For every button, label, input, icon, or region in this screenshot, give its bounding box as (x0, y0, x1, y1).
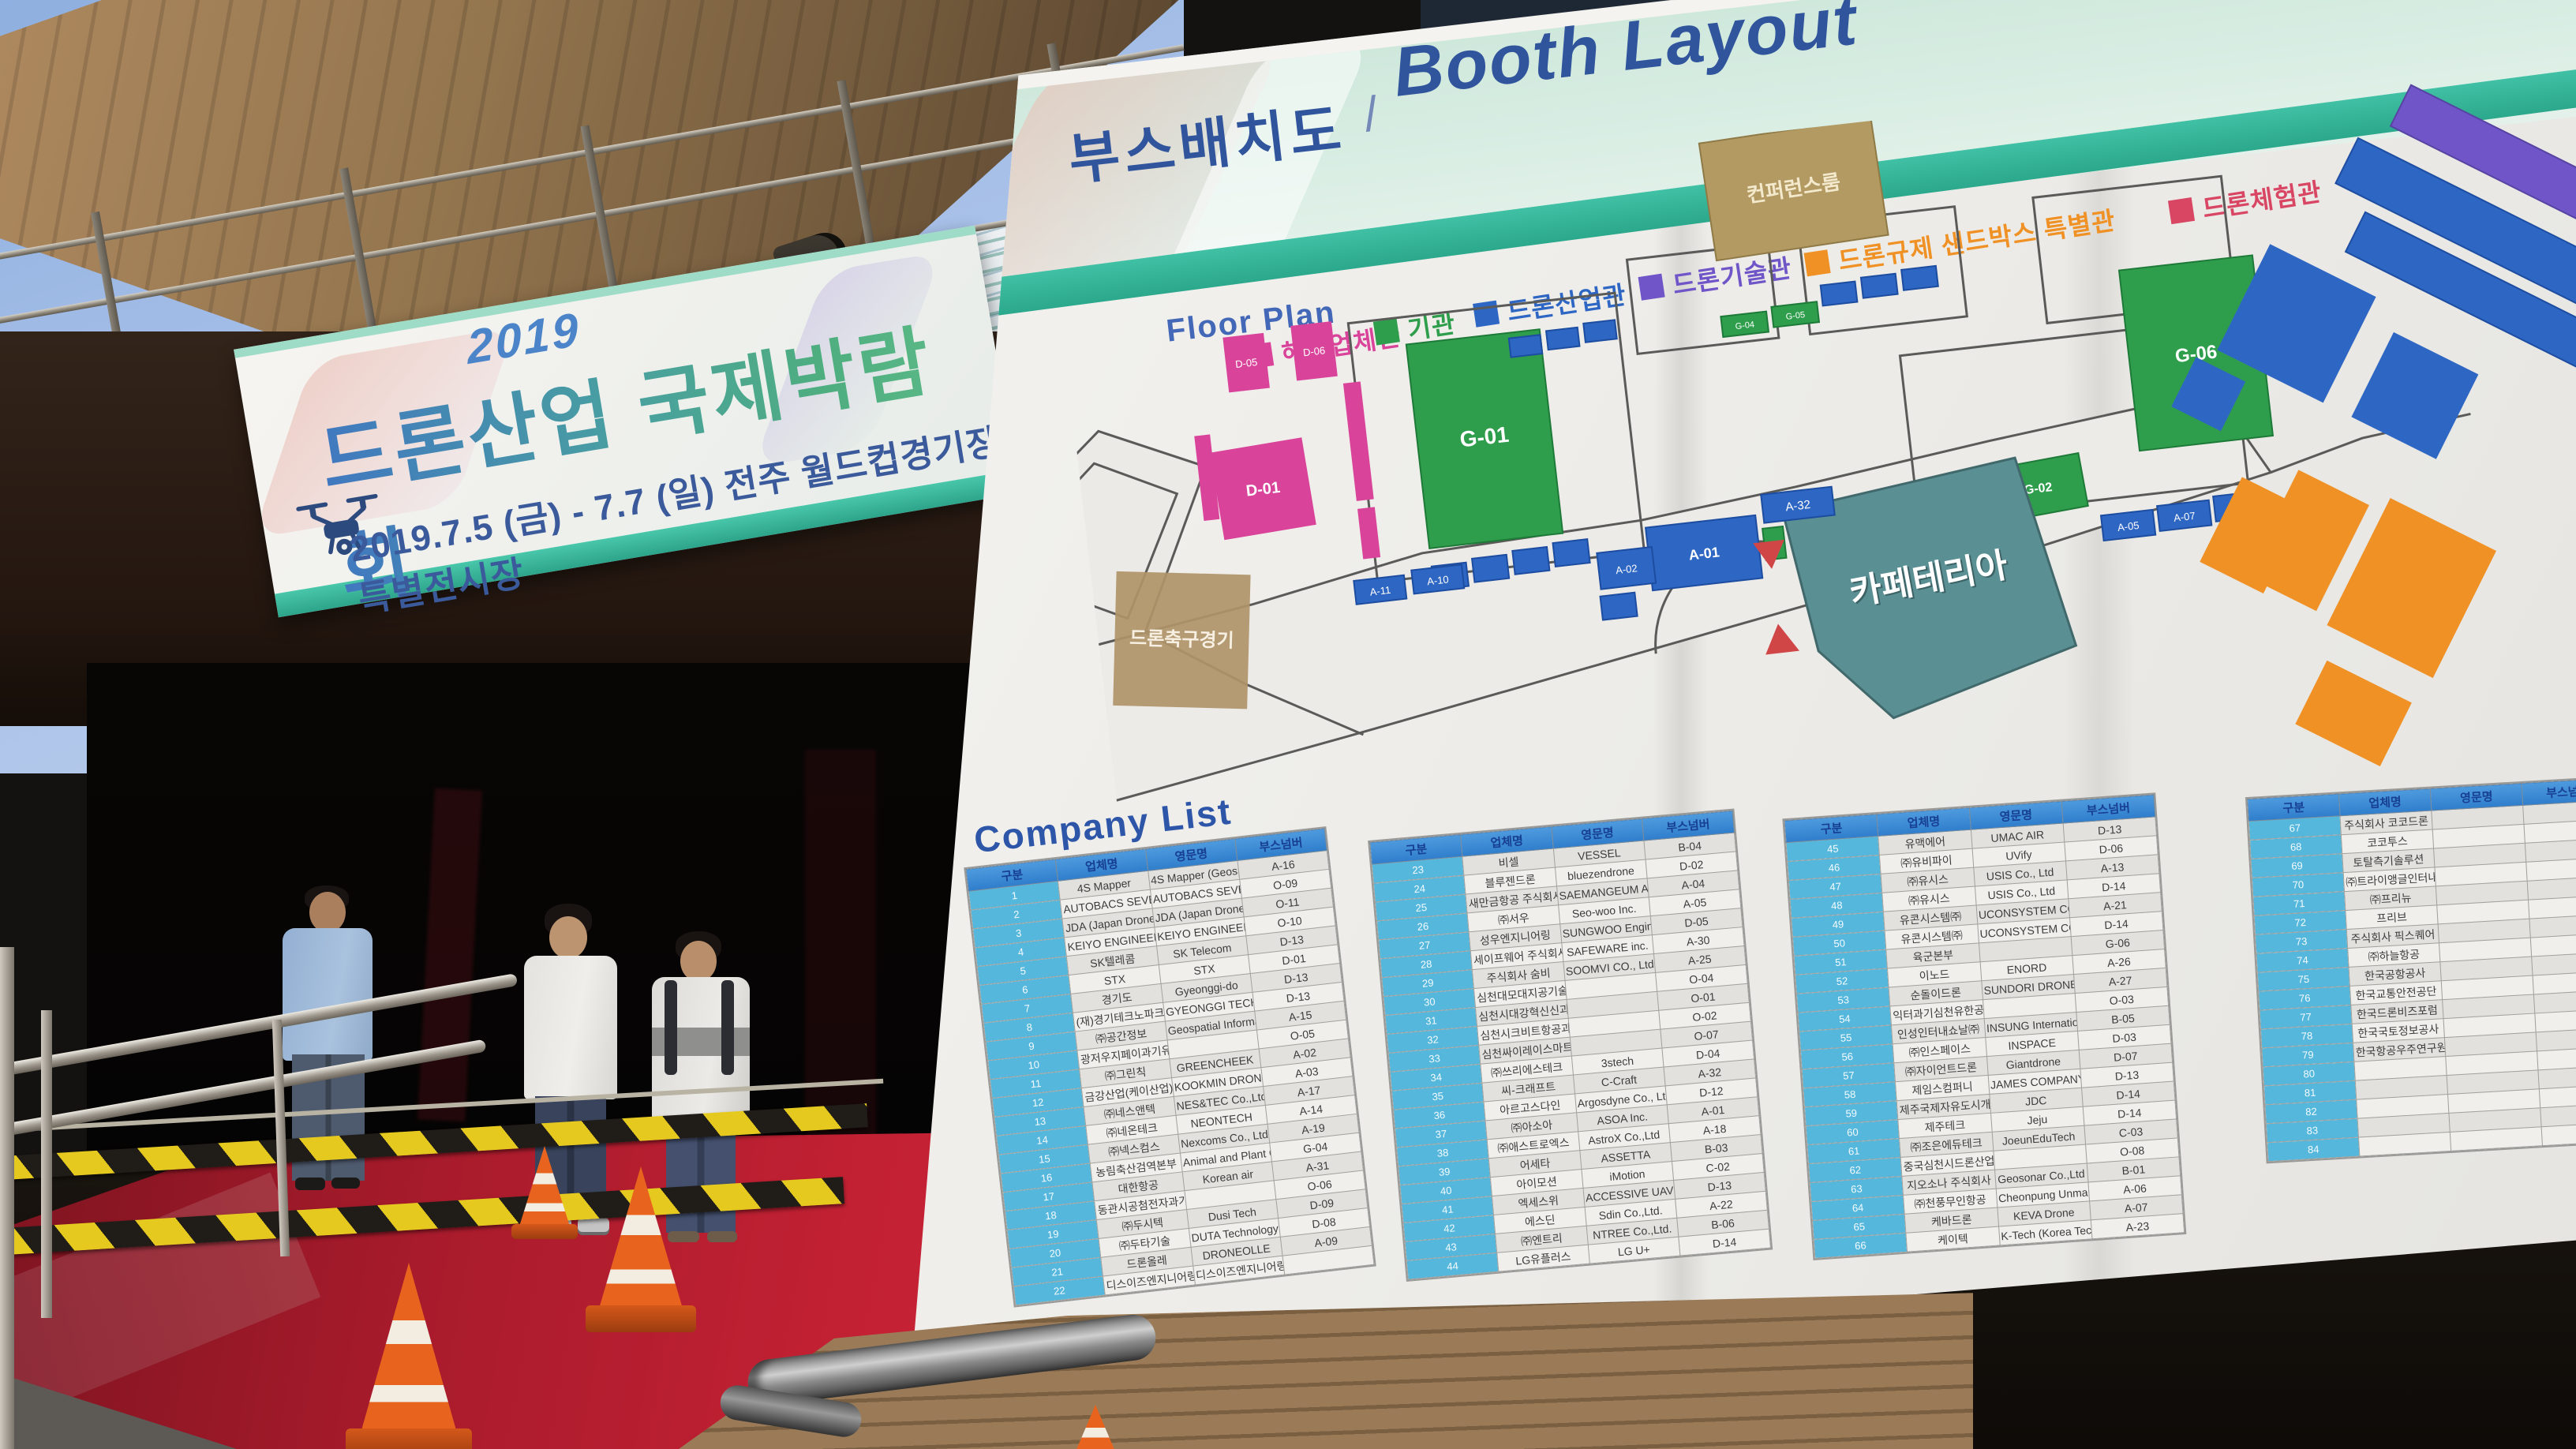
traffic-cone (1058, 1405, 1133, 1449)
company-table-group-3: 구분업체명영문명부스넘버45유맥에어UMAC AIRD-1346㈜유비파이UVi… (1784, 794, 2185, 1258)
booth-label-a32: A-32 (1784, 498, 1810, 514)
booth-label-d05: D-05 (1234, 356, 1258, 370)
traffic-cone (586, 1166, 696, 1332)
company-list-table: 구분업체명영문명부스넘버67주식회사 코코드론68코코투스69토탈측기솔루션70… (2247, 777, 2576, 1162)
booth-label-a07: A-07 (2173, 510, 2196, 524)
metal-railing-post (41, 1010, 52, 1318)
traffic-cone (346, 1263, 472, 1449)
company-table-group-2: 구분업체명영문명부스넘버23비셀VESSELB-0424블루젠드론bluezen… (1369, 811, 1771, 1280)
booth-label-a11: A-11 (1369, 584, 1391, 598)
company-list-table: 구분업체명영문명부스넘버45유맥에어UMAC AIRD-1346㈜유비파이UVi… (1784, 794, 2185, 1258)
company-table-group-1: 구분업체명영문명부스넘버14S Mapper4S Mapper (Geospat… (965, 828, 1374, 1305)
drone-soccer-label: 드론축구경기 (1129, 627, 1234, 651)
traffic-cone (511, 1146, 578, 1239)
company-list-table: 구분업체명영문명부스넘버23비셀VESSELB-0424블루젠드론bluezen… (1369, 811, 1771, 1280)
booth-label-a10: A-10 (1426, 573, 1449, 587)
booth-layout-content: 부스배치도 / Booth Layout Floor Plan 해외업체관 기관… (1018, 0, 2576, 1449)
company-table-group-4: 구분업체명영문명부스넘버67주식회사 코코드론68코코투스69토탈측기솔루션70… (2247, 777, 2576, 1162)
booth-label-d06: D-06 (1302, 344, 1326, 358)
photo-exhibition-entrance: 2019 드론산업 국제박람회 2019.7.5 (금) - 7.7 (일) 전… (0, 0, 2576, 1449)
metal-railing-post (0, 947, 14, 1449)
booth-label-a02: A-02 (1615, 562, 1638, 576)
clist-header-cell: 부스넘버 (2522, 778, 2576, 806)
booth-layout-banner: 부스배치도 / Booth Layout Floor Plan 해외업체관 기관… (868, 0, 2576, 1449)
company-list-table: 구분업체명영문명부스넘버14S Mapper4S Mapper (Geospat… (965, 828, 1374, 1305)
entrance-arrow-up (1762, 622, 1799, 655)
booth-label-a05: A-05 (2117, 519, 2140, 534)
